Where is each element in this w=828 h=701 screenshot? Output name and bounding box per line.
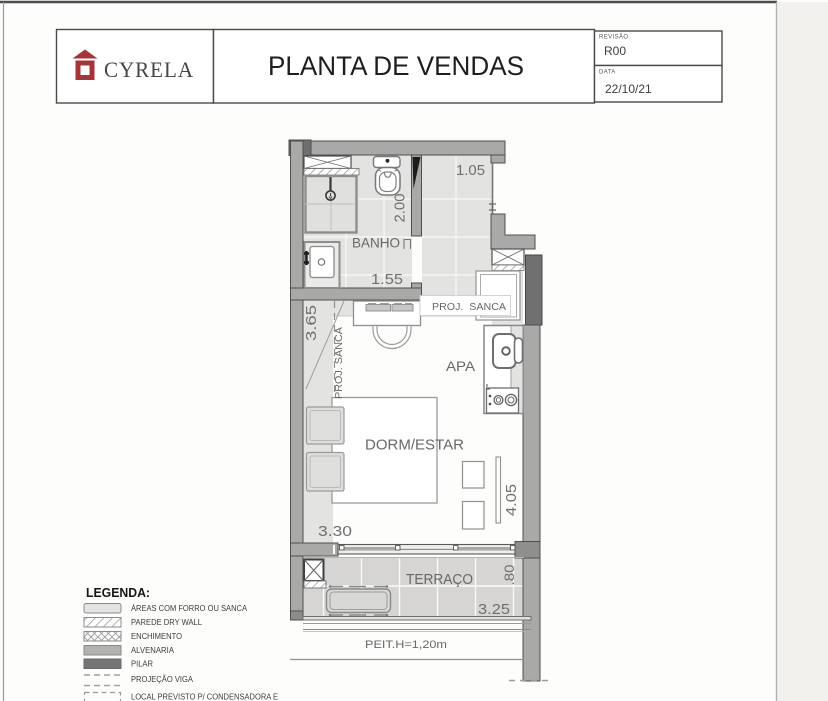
svg-text:.80: .80 — [502, 565, 517, 586]
svg-text:PLANTA DE VENDAS: PLANTA DE VENDAS — [268, 51, 524, 81]
svg-text:APA: APA — [446, 358, 476, 374]
svg-text:BANHO: BANHO — [352, 235, 400, 251]
svg-text:DORM/ESTAR: DORM/ESTAR — [365, 438, 464, 454]
svg-text:2.00: 2.00 — [393, 194, 409, 223]
svg-text:PROJ. SANCA: PROJ. SANCA — [334, 327, 345, 399]
svg-text:LEGENDA:: LEGENDA: — [86, 586, 150, 600]
svg-text:ENCHIMENTO: ENCHIMENTO — [131, 631, 182, 641]
svg-text:REVISÃO: REVISÃO — [599, 34, 628, 41]
svg-text:ÁREAS COM FORRO OU SANCA: ÁREAS COM FORRO OU SANCA — [131, 603, 247, 613]
svg-text:1.05: 1.05 — [456, 163, 485, 179]
svg-text:PROJ. SANCA: PROJ. SANCA — [432, 301, 506, 313]
svg-text:3.65: 3.65 — [304, 305, 320, 341]
svg-text:PILAR: PILAR — [131, 659, 153, 669]
svg-text:1.55: 1.55 — [371, 272, 403, 288]
svg-text:22/10/21: 22/10/21 — [605, 82, 652, 96]
svg-text:PROJEÇÃO VIGA: PROJEÇÃO VIGA — [131, 674, 193, 684]
svg-text:4.05: 4.05 — [504, 484, 520, 516]
svg-text:R00: R00 — [604, 44, 626, 58]
svg-text:PEIT.H=1,20m: PEIT.H=1,20m — [365, 639, 447, 651]
svg-text:DATA: DATA — [599, 70, 616, 76]
svg-text:3.25: 3.25 — [478, 602, 510, 618]
svg-text:LOCAL PREVISTO P/ CONDENSADORA: LOCAL PREVISTO P/ CONDENSADORA E — [131, 692, 278, 701]
svg-text:TERRAÇO: TERRAÇO — [406, 572, 473, 588]
svg-text:CYRELA: CYRELA — [104, 57, 194, 82]
svg-text:ALVENARIA: ALVENARIA — [131, 645, 174, 655]
svg-text:PAREDE DRY WALL: PAREDE DRY WALL — [131, 617, 202, 627]
svg-text:3.30: 3.30 — [318, 524, 352, 540]
